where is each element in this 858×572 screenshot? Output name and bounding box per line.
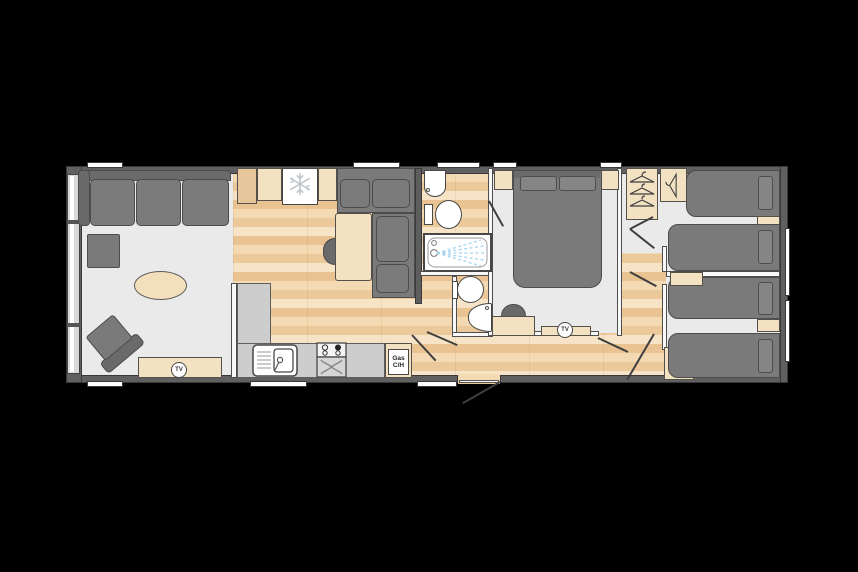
wardrobe-twin1	[660, 168, 687, 202]
footstool	[87, 234, 120, 268]
pillow	[758, 230, 773, 264]
clothes-hanger-icon	[628, 170, 656, 219]
snowflake-icon	[287, 171, 313, 202]
window-top-bathroom	[437, 162, 480, 168]
window-top-master-left	[493, 162, 517, 168]
single-bed-4	[668, 333, 780, 378]
bedside-cabinet-master-right	[601, 170, 619, 190]
entrance-threshold	[459, 380, 499, 383]
window-right-lower	[785, 300, 790, 362]
pillow	[758, 176, 773, 210]
dinette-cushion	[372, 179, 410, 208]
dinette-cushion	[340, 179, 370, 208]
bedroom-tv-label: TV	[561, 327, 569, 333]
dinette-cushion	[376, 264, 409, 293]
single-bed-2	[668, 224, 780, 271]
dinette-cushion	[376, 216, 409, 262]
bathroom-basin-tap	[426, 188, 430, 192]
bedside-cabinet-twin2	[757, 319, 780, 332]
wall-master-right	[617, 168, 622, 336]
window-bottom-lounge	[87, 381, 123, 387]
kitchen-sink	[252, 344, 298, 382]
bath-with-shower	[423, 233, 492, 277]
bedroom-tv-badge: TV	[557, 322, 573, 338]
wardrobe-landing	[626, 168, 658, 220]
wall-kitchen-bathroom	[415, 168, 422, 304]
floorplan-canvas: TV	[0, 0, 858, 572]
pillow	[758, 282, 773, 315]
wall-ensuite-bottom	[452, 332, 493, 337]
toilet-bowl	[435, 200, 462, 229]
dinette-bench-right	[372, 213, 415, 298]
lounge-tv-label: TV	[175, 367, 183, 373]
single-bed-1	[686, 170, 780, 217]
kitchen-tall-unit	[237, 168, 257, 204]
ensuite-toilet-bowl	[457, 276, 484, 303]
toilet-cistern	[424, 204, 433, 225]
kitchen-worktop-left	[257, 168, 282, 201]
double-bed	[513, 170, 602, 288]
dressing-table	[492, 316, 535, 336]
wall-twin-left-lower	[662, 284, 667, 350]
dinette-table	[335, 213, 372, 281]
pillow	[559, 176, 596, 191]
sofa-arm-left	[78, 170, 90, 226]
hob-and-oven	[316, 342, 347, 383]
pillow	[520, 176, 557, 191]
ensuite-basin-tap	[485, 306, 489, 310]
window-right-upper	[785, 228, 790, 296]
gas-label-line1: Gas	[389, 355, 408, 362]
clothes-hanger-icon	[663, 172, 684, 198]
bedside-cabinet-master-left	[494, 170, 513, 190]
dinette-bench-top	[337, 168, 415, 213]
gas-label-line2: C/H	[389, 362, 408, 369]
front-window-mullion-2	[67, 323, 80, 327]
gas-central-heating-box: Gas C/H	[388, 349, 409, 375]
window-bottom-hall	[417, 381, 457, 387]
wall-twin-left-upper	[662, 246, 667, 272]
front-window-glass	[70, 176, 74, 372]
fridge-freezer	[282, 168, 318, 205]
lounge-tv-badge: TV	[171, 362, 187, 378]
pillow	[758, 339, 773, 373]
kitchen-worktop-right	[318, 168, 337, 201]
sofa-cushion	[90, 179, 135, 226]
door-entrance	[462, 381, 500, 404]
sofa-cushion	[182, 179, 229, 226]
window-top-lounge	[87, 162, 123, 168]
bathroom-basin	[424, 170, 446, 197]
coffee-table	[134, 271, 187, 300]
headboard-cabinet-twin2	[670, 272, 703, 286]
sofa-cushion	[136, 179, 181, 226]
